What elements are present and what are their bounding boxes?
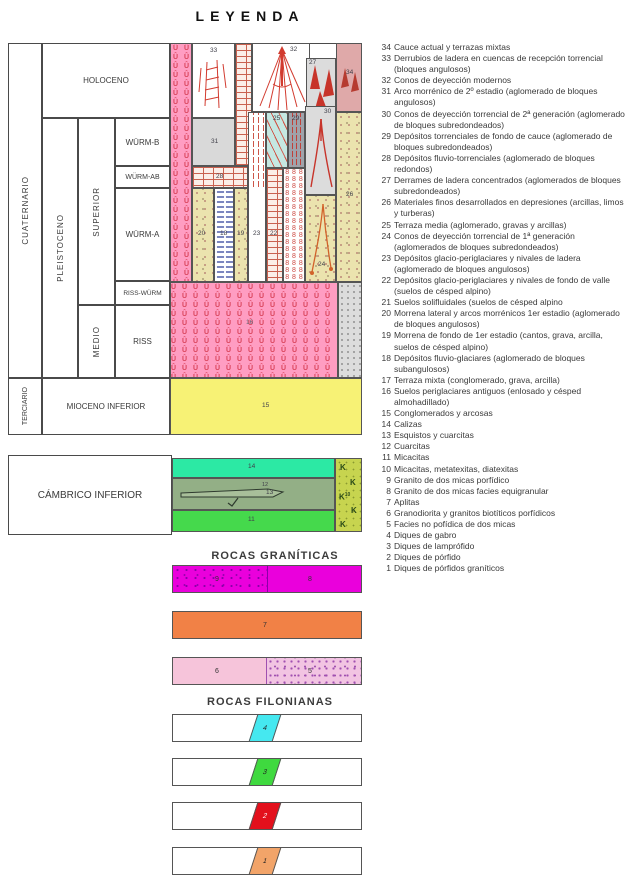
strat-label-mioceno: MIOCENO INFERIOR — [67, 402, 146, 411]
legend-item-number: 3 — [378, 541, 391, 552]
legend-item-text: Granito de dos micas facies equigranular — [394, 486, 626, 497]
legend-item-text: Conos de deyección modernos — [394, 75, 626, 86]
strat-cell-wurm-ab: WÜRM-AB — [115, 166, 170, 188]
unit-number-18: 18 — [220, 231, 227, 238]
legend-item-text: Diques de pórfido — [394, 552, 626, 563]
legend-item-text: Depósitos fluvio-torrenciales (aglomerad… — [394, 153, 626, 175]
unit-field-16-old-periglacial-soils: Û Û Û Û Û Û Û Û Û Û Û Û Û Û Û Û Û Û Û Û … — [170, 282, 338, 378]
k-symbol: K — [351, 507, 357, 515]
granite-bar-granodiorite — [172, 657, 362, 685]
k-symbol: K — [340, 521, 346, 529]
legend-item: 18Depósitos fluvio-glaciares (aglomerado… — [378, 353, 626, 375]
legend-item-text: Diques de gabro — [394, 530, 626, 541]
lamprophyre-dike-band: 3 — [249, 759, 281, 785]
legend-item: 27Derrames de ladera concentrados (aglom… — [378, 175, 626, 197]
legend-item-text: Diques de pórfidos graníticos — [394, 563, 626, 574]
legend-item-number: 15 — [378, 408, 391, 419]
legend-item: 10Micacitas, metatexitas, diatexitas — [378, 464, 626, 475]
unit-number-19: 19 — [237, 231, 244, 238]
strat-label-superior: SUPERIOR — [92, 187, 101, 237]
legend-item-number: 27 — [378, 175, 391, 197]
legend-item-number: 13 — [378, 430, 391, 441]
unit-number-12: 12 — [262, 483, 268, 489]
legend-item-number: 18 — [378, 353, 391, 375]
unit-number-33: 33 — [210, 48, 217, 55]
legend-item-number: 32 — [378, 75, 391, 86]
legend-item-number: 6 — [378, 508, 391, 519]
legend-item-number: 10 — [378, 464, 391, 475]
unit-number-13: 13 — [266, 490, 273, 497]
strat-cell-terciario: TERCIARIO — [8, 378, 42, 435]
strat-label-terciario: TERCIARIO — [22, 387, 29, 425]
legend-item: 11Micacitas — [378, 452, 626, 463]
legend-item-text: Suelos periglaciares antiguos (enlosado … — [394, 386, 626, 408]
legend-item-number: 31 — [378, 86, 391, 108]
legend-item-number: 16 — [378, 386, 391, 408]
strat-label-cuaternario: CUATERNARIO — [21, 176, 30, 245]
legend-item-number: 23 — [378, 253, 391, 275]
legend-item-number: 24 — [378, 231, 391, 253]
unit-number-29: 29 — [292, 116, 299, 123]
unit-column-10-metatexitas: K K K10 K K — [335, 458, 362, 532]
legend-item-text: Depósitos glacio-periglaciares y nivales… — [394, 275, 626, 297]
unit-column-22-valley-floor — [266, 168, 283, 282]
gabro-dike-band: 4 — [249, 715, 281, 741]
legend-item-list: 34Cauce actual y terrazas mixtas33Derrub… — [378, 42, 626, 575]
legend-item: 19Morrena de fondo de 1er estadio (canto… — [378, 330, 626, 352]
legend-item-number: 20 — [378, 308, 391, 330]
legend-item: 34Cauce actual y terrazas mixtas — [378, 42, 626, 53]
strat-cell-pleistoceno: PLEISTOCENO — [42, 118, 78, 378]
strat-label-wurm-a: WÜRM-A — [126, 230, 160, 239]
legend-item-number: 2 — [378, 552, 391, 563]
unit-number-32: 32 — [290, 47, 297, 54]
legend-item-number: 22 — [378, 275, 391, 297]
unit-number-4: 4 — [262, 725, 268, 732]
legend-item: 5Facies no pofídica de dos micas — [378, 519, 626, 530]
unit-number-31: 31 — [211, 139, 218, 146]
unit-column-23-glacioperiglacial — [248, 112, 266, 282]
strat-label-riss: RISS — [133, 337, 152, 346]
legend-item-text: Suelos solifluidales (suelos de césped a… — [394, 297, 626, 308]
porphyry-dike-band: 2 — [249, 803, 281, 829]
granite-bar-aplites — [172, 611, 362, 639]
legend-item: 22Depósitos glacio-periglaciares y nival… — [378, 275, 626, 297]
legend-item: 8Granito de dos micas facies equigranula… — [378, 486, 626, 497]
porphyritic-granite-pattern — [173, 566, 268, 592]
legend-item-number: 28 — [378, 153, 391, 175]
legend-item-text: Terraza media (aglomerado, gravas y arci… — [394, 220, 626, 231]
legend-item: 6Granodiorita y granitos biotíticos porf… — [378, 508, 626, 519]
section-title-filonianas: ROCAS FILONIANAS — [185, 696, 355, 708]
legend-item-number: 30 — [378, 109, 391, 131]
strat-cell-riss-wurm: RISS-WÜRM — [115, 281, 170, 305]
legend-item: 13Esquistos y cuarcitas — [378, 430, 626, 441]
legend-item: 17Terraza mixta (conglomerado, grava, ar… — [378, 375, 626, 386]
strat-label-riss-wurm: RISS-WÜRM — [123, 290, 161, 297]
legend-item: 4Diques de gabro — [378, 530, 626, 541]
unit-number-16: 16 — [246, 320, 253, 327]
legend-item-text: Derrubios de ladera en cuencas de recepc… — [394, 53, 626, 75]
legend-item: 32Conos de deyección modernos — [378, 75, 626, 86]
unit-cell-34-cauce-actual — [336, 43, 362, 112]
strat-cell-superior: SUPERIOR — [78, 118, 115, 305]
strat-label-medio: MEDIO — [92, 326, 101, 357]
unit-cell-24-cone-1st-gen — [305, 195, 336, 282]
unit-number-27: 27 — [309, 60, 316, 67]
unit-number-8: 8 — [308, 576, 312, 583]
unit-number-28: 28 — [216, 174, 223, 181]
legend-item-text: Cuarcitas — [394, 441, 626, 452]
legend-item-number: 26 — [378, 197, 391, 219]
unit-number-26: 26 — [346, 192, 353, 199]
unit-band-13-esquistos — [172, 478, 335, 510]
legend-item-text: Granito de dos micas porfídico — [394, 475, 626, 486]
granite-porphyry-dike-band: 1 — [249, 848, 281, 874]
legend-item-number: 21 — [378, 297, 391, 308]
unit-number-2: 2 — [262, 813, 268, 820]
legend-item-text: Terraza mixta (conglomerado, grava, arci… — [394, 375, 626, 386]
unit-number-3: 3 — [262, 769, 268, 776]
legend-item-number: 34 — [378, 42, 391, 53]
legend-item-text: Conglomerados y arcosas — [394, 408, 626, 419]
mixed-terrace-icon — [337, 44, 362, 112]
legend-item: 25Terraza media (aglomerado, gravas y ar… — [378, 220, 626, 231]
legend-item: 16Suelos periglaciares antiguos (enlosad… — [378, 386, 626, 408]
k-symbol: K — [340, 464, 346, 472]
legend-item: 24Conos de deyección torrencial de 1ª ge… — [378, 231, 626, 253]
legend-item-number: 8 — [378, 486, 391, 497]
legend-item-number: 12 — [378, 441, 391, 452]
unit-number-5: 5 — [308, 668, 312, 675]
scree-pattern-icon — [193, 44, 235, 118]
dike-bar-porfido: 2 — [172, 802, 362, 830]
legend-item: 29Depósitos torrenciales de fondo de cau… — [378, 131, 626, 153]
granite-bar-two-mica — [172, 565, 362, 593]
unit-number-15: 15 — [262, 403, 269, 410]
legend-item: 1Diques de pórfidos graníticos — [378, 563, 626, 574]
unit-number-10: 10 — [345, 492, 351, 498]
unit-number-25: 25 — [273, 116, 280, 123]
unit-number-23: 23 — [253, 231, 260, 238]
legend-item-text: Depósitos torrenciales de fondo de cauce… — [394, 131, 626, 153]
legend-item-text: Depósitos glacio-periglaciares y nivales… — [394, 253, 626, 275]
legend-item-text: Derrames de ladera concentrados (aglomer… — [394, 175, 626, 197]
legend-item: 2Diques de pórfido — [378, 552, 626, 563]
legend-item-text: Conos de deyección torrencial de 2ª gene… — [394, 109, 626, 131]
unit-number-20: 20 — [198, 231, 205, 238]
k-symbol: K — [350, 479, 356, 487]
k-symbol-with-unit: K10 — [339, 493, 350, 502]
legend-item: 3Diques de lamprófido — [378, 541, 626, 552]
legend-item-text: Conos de deyección torrencial de 1ª gene… — [394, 231, 626, 253]
section-title-graniticas: ROCAS GRANÍTICAS — [190, 550, 360, 562]
map-legend-page: LEYENDA CUATERNARIO TERCIARIO HOLOCENO P… — [0, 0, 630, 881]
legend-item-text: Aplitas — [394, 497, 626, 508]
unit-number-22: 22 — [270, 231, 277, 238]
page-title: LEYENDA — [150, 8, 350, 24]
unit-number-14: 14 — [248, 464, 255, 471]
legend-item-text: Arco morrénico de 2º estadio (aglomerado… — [394, 86, 626, 108]
legend-item: 20Morrena lateral y arcos morrénicos 1er… — [378, 308, 626, 330]
legend-item-text: Materiales finos desarrollados en depres… — [394, 197, 626, 219]
strat-label-wurm-ab: WÜRM-AB — [125, 174, 159, 181]
strat-label-pleistoceno: PLEISTOCENO — [56, 214, 65, 282]
legend-item-text: Calizas — [394, 419, 626, 430]
legend-item: 33Derrubios de ladera en cuencas de rece… — [378, 53, 626, 75]
unit-number-30: 30 — [324, 109, 331, 116]
strat-cell-riss: RISS — [115, 305, 170, 378]
legend-item-text: Cauce actual y terrazas mixtas — [394, 42, 626, 53]
legend-item-text: Morrena lateral y arcos morrénicos 1er e… — [394, 308, 626, 330]
legend-item-number: 4 — [378, 530, 391, 541]
unit-number-7: 7 — [263, 622, 267, 629]
unit-number-24: 24 — [318, 262, 325, 269]
unit-strip-mixed-terrace — [338, 282, 362, 378]
unit-number-9: 9 — [215, 576, 219, 583]
legend-item-number: 25 — [378, 220, 391, 231]
legend-item-number: 11 — [378, 452, 391, 463]
strat-cell-cuaternario: CUATERNARIO — [8, 43, 42, 378]
unit-number-1: 1 — [262, 858, 268, 865]
legend-item-text: Morrena de fondo de 1er estadio (cantos,… — [394, 330, 626, 352]
legend-item-text: Depósitos fluvio-glaciares (aglomerado d… — [394, 353, 626, 375]
strat-label-wurm-b: WÜRM-B — [126, 138, 160, 147]
legend-item-text: Micacitas, metatexitas, diatexitas — [394, 464, 626, 475]
legend-item: 15Conglomerados y arcosas — [378, 408, 626, 419]
legend-item: 30Conos de deyección torrencial de 2ª ge… — [378, 109, 626, 131]
strat-cell-mioceno: MIOCENO INFERIOR — [42, 378, 170, 435]
strat-label-cambrico: CÁMBRICO INFERIOR — [38, 490, 142, 501]
unit-number-34: 34 — [346, 70, 353, 77]
legend-item-text: Micacitas — [394, 452, 626, 463]
legend-item-number: 19 — [378, 330, 391, 352]
legend-item-number: 9 — [378, 475, 391, 486]
legend-item: 21Suelos solifluidales (suelos de césped… — [378, 297, 626, 308]
torrent-cone-icon — [306, 107, 336, 195]
unit-strip-solifluidal-soils: Û Û Û Û Û Û Û Û Û Û Û Û Û Û Û Û Û Û Û Û … — [170, 43, 192, 282]
nival-pattern — [249, 113, 265, 189]
alluvial-fan-icon — [253, 44, 310, 112]
unit-cell-30-torrential-cone — [305, 106, 336, 195]
dike-bar-lamprofido: 3 — [172, 758, 362, 786]
two-mica-facies-pattern — [266, 658, 361, 684]
strat-label-holoceno: HOLOCENO — [83, 76, 129, 85]
old-cone-icon — [306, 196, 336, 282]
legend-item: 26Materiales finos desarrollados en depr… — [378, 197, 626, 219]
legend-item: 9Granito de dos micas porfídico — [378, 475, 626, 486]
unit-number-11: 11 — [248, 517, 255, 524]
unit-column-rounded-blocks: 8 8 8 8 8 8 8 8 8 8 8 8 8 8 8 8 8 8 8 8 … — [283, 168, 305, 282]
strat-cell-wurm-a: WÜRM-A — [115, 188, 170, 281]
strat-cell-wurm-b: WÜRM-B — [115, 118, 170, 166]
quartzite-lens-icon — [173, 479, 335, 510]
legend-item-text: Diques de lamprófido — [394, 541, 626, 552]
legend-item-number: 29 — [378, 131, 391, 153]
legend-item-text: Esquistos y cuarcitas — [394, 430, 626, 441]
unit-number-6: 6 — [215, 668, 219, 675]
legend-item: 12Cuarcitas — [378, 441, 626, 452]
legend-item: 28Depósitos fluvio-torrenciales (aglomer… — [378, 153, 626, 175]
legend-item-number: 1 — [378, 563, 391, 574]
legend-item-number: 33 — [378, 53, 391, 75]
legend-item: 7Aplitas — [378, 497, 626, 508]
slope-flow-icon — [307, 59, 336, 112]
legend-item: 31Arco morrénico de 2º estadio (aglomera… — [378, 86, 626, 108]
unit-cell-32-modern-cone — [252, 43, 310, 112]
legend-item-number: 14 — [378, 419, 391, 430]
legend-item-number: 7 — [378, 497, 391, 508]
dike-bar-gabro: 4 — [172, 714, 362, 742]
strat-cell-holoceno: HOLOCENO — [42, 43, 170, 118]
legend-item-text: Facies no pofídica de dos micas — [394, 519, 626, 530]
dike-bar-porfidos-graniticos: 1 — [172, 847, 362, 875]
legend-item-text: Granodiorita y granitos biotíticos porfí… — [394, 508, 626, 519]
legend-item: 14Calizas — [378, 419, 626, 430]
legend-item-number: 17 — [378, 375, 391, 386]
strat-cell-cambrico: CÁMBRICO INFERIOR — [8, 455, 172, 535]
strat-cell-medio: MEDIO — [78, 305, 115, 378]
legend-item-number: 5 — [378, 519, 391, 530]
legend-item: 23Depósitos glacio-periglaciares y nival… — [378, 253, 626, 275]
